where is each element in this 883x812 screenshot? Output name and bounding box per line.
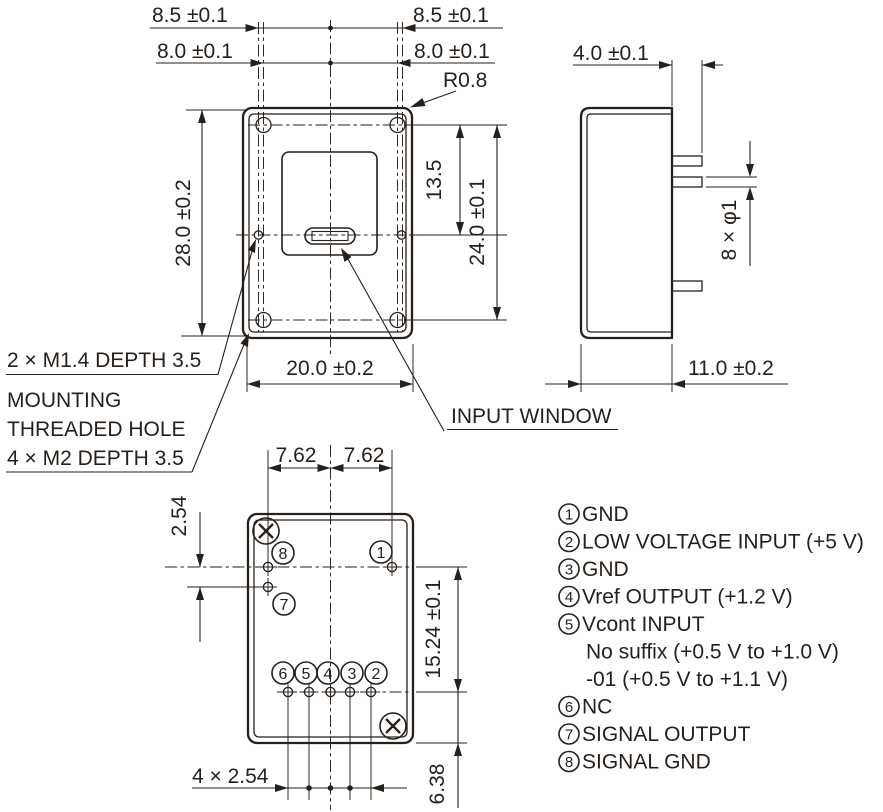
dim-front-width: 20.0 ±0.2	[286, 357, 373, 380]
dim-row-span: 15.24 ±0.1	[422, 579, 445, 678]
legend-label-2: LOW VOLTAGE INPUT (+5 V)	[582, 531, 864, 554]
dim-pitch-left: 7.62	[276, 444, 317, 467]
legend-label-4: Vref OUTPUT (+1.2 V)	[582, 586, 793, 609]
front-view	[236, 20, 412, 357]
side-body-outline	[581, 108, 672, 338]
dim-corner-radius: R0.8	[443, 69, 487, 92]
dim-85-right: 8.5 ±0.1	[413, 4, 489, 27]
dim-pin-diameter: 8 × φ1	[718, 200, 741, 261]
legend-label-7: SIGNAL OUTPUT	[582, 723, 751, 746]
pin-number-2: 2	[372, 666, 381, 683]
dim-hole-span: 24.0 ±0.1	[466, 178, 489, 265]
dim-80-right: 8.0 ±0.1	[414, 40, 490, 63]
legend-num-2: 2	[565, 534, 573, 551]
pin	[672, 156, 702, 166]
screw-mark	[380, 713, 406, 739]
front-body-outline	[243, 108, 412, 338]
dim-row-gap: 2.54	[168, 495, 191, 536]
pin-number-1: 1	[377, 545, 386, 562]
legend-num-1: 1	[565, 507, 573, 524]
callout-mounting-line2: THREADED HOLE	[7, 418, 186, 441]
bottom-view: 8 7 1 6 5 4 3 2 7.62 7.62 2.54 15.24 ±0.…	[165, 444, 467, 810]
side-view: 4.0 ±0.1 8 × φ1 11.0 ±0.2	[545, 42, 788, 392]
pin-number-8: 8	[279, 546, 288, 563]
legend-num-8: 8	[565, 754, 573, 771]
legend-label-3: GND	[582, 558, 629, 581]
pin-number-3: 3	[348, 666, 357, 683]
pin-number-4: 4	[324, 666, 333, 683]
callout-m14-hole: 2 × M1.4 DEPTH 3.5	[7, 349, 201, 372]
pin	[672, 177, 702, 187]
legend-label-8: SIGNAL GND	[582, 751, 711, 774]
legend-label-5-sub1: No suffix (+0.5 V to +1.0 V)	[586, 641, 839, 664]
legend-num-5: 5	[565, 617, 573, 634]
legend-label-1: GND	[582, 503, 629, 526]
legend-num-3: 3	[565, 562, 573, 579]
pin-legend: 1 GND 2 LOW VOLTAGE INPUT (+5 V) 3 GND 4…	[559, 503, 864, 774]
legend-num-7: 7	[565, 727, 573, 744]
callout-input-window: INPUT WINDOW	[451, 405, 612, 428]
legend-label-6: NC	[582, 696, 612, 719]
dim-pin-length: 4.0 ±0.1	[573, 42, 649, 65]
legend-num-4: 4	[565, 589, 573, 606]
legend-label-5-sub2: -01 (+0.5 V to +1.1 V)	[586, 668, 788, 691]
dimension-drawing: 8.5 ±0.1 8.5 ±0.1 8.0 ±0.1 8.0 ±0.1 R0.8…	[0, 0, 883, 812]
dim-80-left: 8.0 ±0.1	[157, 40, 233, 63]
dim-bottom-offset: 6.38	[426, 764, 449, 805]
dim-pin-pitch: 4 × 2.54	[192, 765, 269, 788]
pin-number-6: 6	[279, 666, 288, 683]
pin	[672, 281, 702, 291]
legend-label-5: Vcont INPUT	[582, 613, 705, 636]
screw-mark	[253, 518, 279, 544]
dim-window-offset: 13.5	[423, 160, 446, 201]
dim-pitch-right: 7.62	[344, 444, 385, 467]
input-window-region	[282, 152, 377, 255]
pin-number-7: 7	[280, 597, 289, 614]
callout-mounting-line1: MOUNTING	[7, 389, 121, 412]
dim-front-height: 28.0 ±0.2	[172, 179, 195, 266]
dim-depth: 11.0 ±0.2	[688, 357, 774, 380]
technical-drawing-page: 8.5 ±0.1 8.5 ±0.1 8.0 ±0.1 8.0 ±0.1 R0.8…	[0, 0, 883, 812]
pin-number-5: 5	[302, 666, 311, 683]
callout-mounting-line3: 4 × M2 DEPTH 3.5	[7, 447, 184, 470]
pin-number-labels: 8 7 1 6 5 4 3 2	[272, 541, 392, 684]
legend-num-6: 6	[565, 699, 573, 716]
dim-85-left: 8.5 ±0.1	[152, 4, 228, 27]
